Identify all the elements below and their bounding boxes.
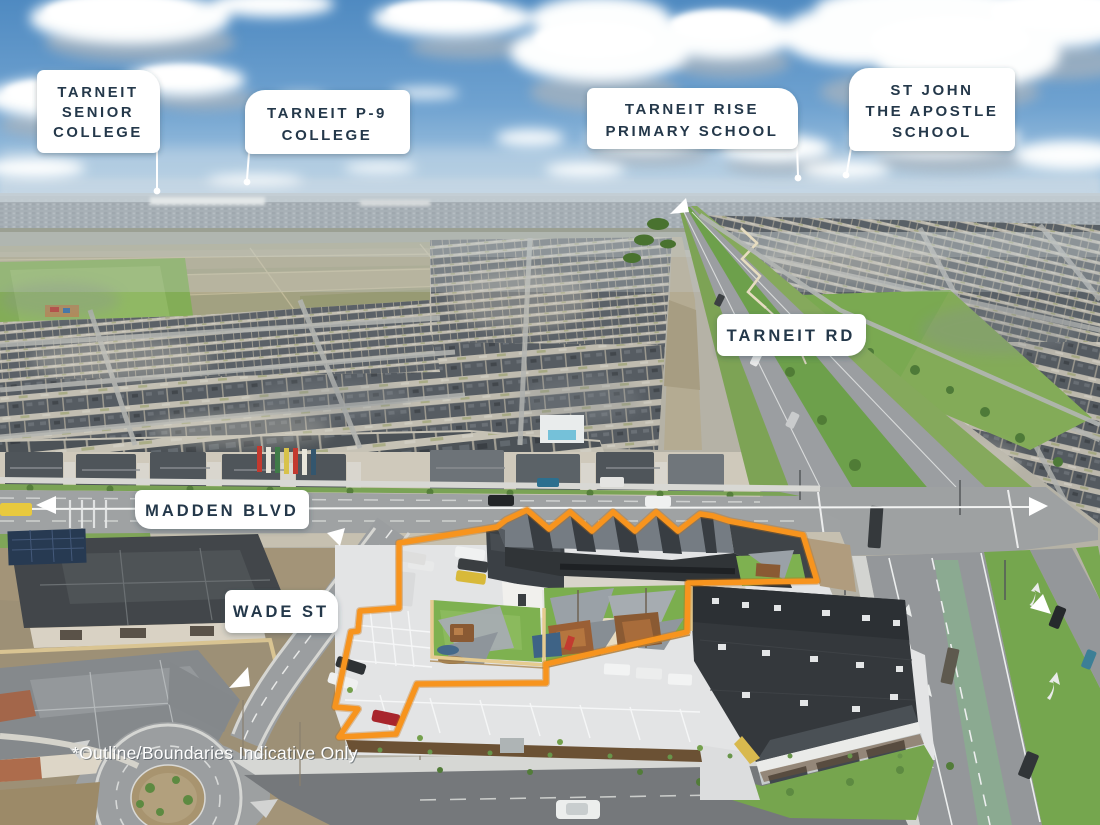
svg-text:COLLEGE: COLLEGE xyxy=(53,125,143,141)
svg-text:THE APOSTLE: THE APOSTLE xyxy=(865,103,998,120)
svg-text:COLLEGE: COLLEGE xyxy=(282,127,373,144)
svg-text:PRIMARY SCHOOL: PRIMARY SCHOOL xyxy=(605,123,778,140)
svg-text:TARNEIT RISE: TARNEIT RISE xyxy=(625,101,759,118)
svg-text:ST JOHN: ST JOHN xyxy=(890,82,973,99)
svg-text:TARNEIT RD: TARNEIT RD xyxy=(727,327,856,345)
svg-text:*Outline/Boundaries Indicative: *Outline/Boundaries Indicative Only xyxy=(72,743,358,763)
svg-text:WADE ST: WADE ST xyxy=(233,603,329,621)
svg-text:TARNEIT: TARNEIT xyxy=(57,85,138,101)
svg-text:SENIOR: SENIOR xyxy=(62,105,134,121)
svg-text:MADDEN BLVD: MADDEN BLVD xyxy=(145,502,299,520)
svg-text:TARNEIT P-9: TARNEIT P-9 xyxy=(267,105,387,122)
svg-text:SCHOOL: SCHOOL xyxy=(892,124,972,141)
